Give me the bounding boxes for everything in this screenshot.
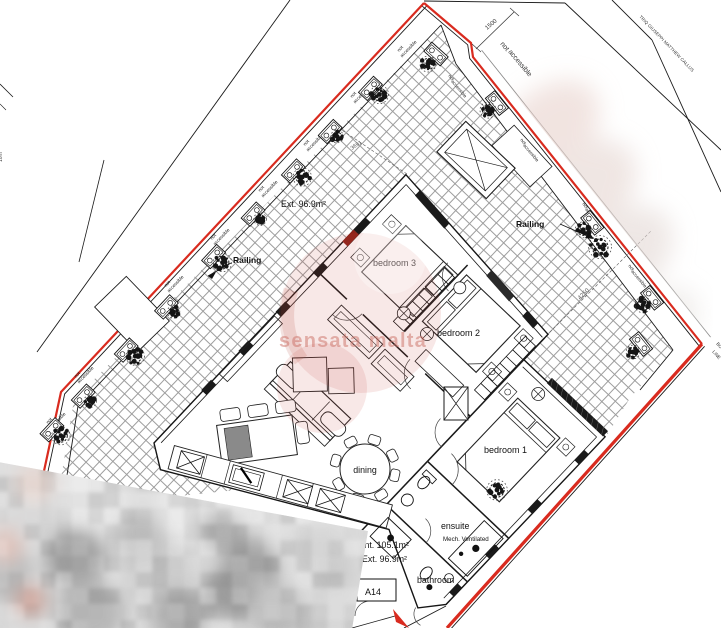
svg-text:ensuite: ensuite (441, 521, 469, 531)
svg-text:Ext. 96.9m²: Ext. 96.9m² (362, 554, 407, 564)
svg-text:sensata malta: sensata malta (279, 330, 427, 352)
svg-text:Railing: Railing (233, 255, 261, 265)
svg-text:Railing: Railing (516, 219, 544, 229)
svg-text:bedroom 2: bedroom 2 (437, 328, 480, 338)
svg-text:bedroom 1: bedroom 1 (484, 445, 527, 455)
svg-text:dining: dining (353, 465, 377, 475)
svg-text:A14: A14 (365, 587, 381, 597)
svg-text:10m: 10m (0, 152, 4, 162)
svg-text:Mech. Ventilated: Mech. Ventilated (443, 536, 489, 543)
svg-text:Int. 105.1m²: Int. 105.1m² (362, 540, 409, 550)
svg-text:Ext. 96.9m²: Ext. 96.9m² (281, 199, 326, 209)
svg-text:bathroom: bathroom (417, 575, 454, 585)
